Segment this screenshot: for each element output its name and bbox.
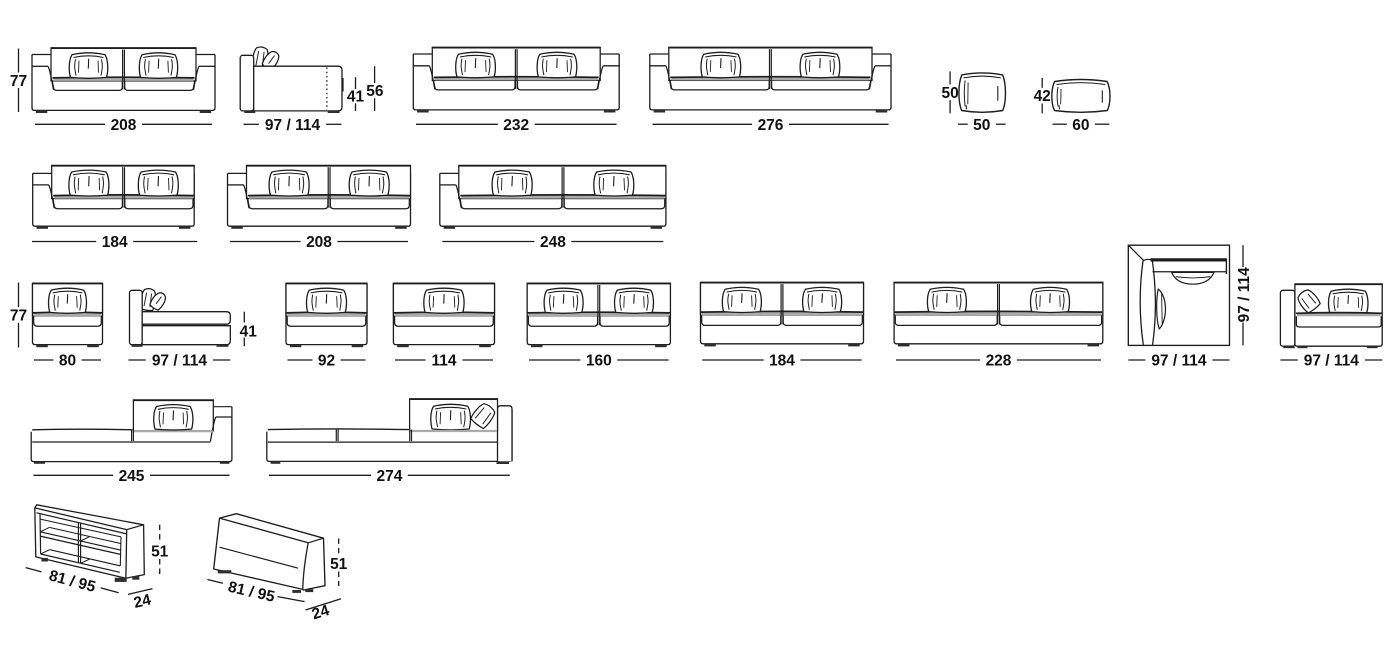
svg-text:208: 208 bbox=[306, 234, 332, 251]
svg-text:50: 50 bbox=[941, 85, 958, 102]
svg-text:232: 232 bbox=[503, 117, 529, 134]
svg-text:276: 276 bbox=[758, 117, 784, 134]
svg-text:60: 60 bbox=[1072, 117, 1089, 134]
svg-text:245: 245 bbox=[119, 468, 145, 485]
svg-text:97 / 114: 97 / 114 bbox=[1304, 353, 1360, 370]
svg-text:228: 228 bbox=[986, 353, 1012, 370]
svg-text:92: 92 bbox=[318, 353, 335, 370]
svg-text:51: 51 bbox=[151, 544, 169, 561]
svg-text:248: 248 bbox=[540, 234, 566, 251]
svg-text:160: 160 bbox=[586, 353, 612, 370]
svg-text:56: 56 bbox=[366, 83, 384, 100]
svg-text:184: 184 bbox=[102, 234, 128, 251]
svg-text:50: 50 bbox=[973, 117, 990, 134]
svg-text:184: 184 bbox=[769, 353, 795, 370]
svg-text:80: 80 bbox=[59, 353, 76, 370]
svg-text:208: 208 bbox=[111, 117, 137, 134]
svg-text:41: 41 bbox=[240, 323, 258, 340]
svg-text:97 / 114: 97 / 114 bbox=[1236, 267, 1253, 323]
svg-text:114: 114 bbox=[431, 353, 456, 370]
svg-text:41: 41 bbox=[347, 89, 365, 106]
svg-text:97 / 114: 97 / 114 bbox=[152, 353, 208, 370]
svg-text:51: 51 bbox=[330, 556, 348, 573]
svg-text:97 / 114: 97 / 114 bbox=[265, 117, 321, 134]
svg-text:274: 274 bbox=[376, 468, 402, 485]
svg-text:42: 42 bbox=[1034, 88, 1051, 105]
svg-text:97 / 114: 97 / 114 bbox=[1151, 353, 1207, 370]
svg-text:77: 77 bbox=[10, 308, 27, 325]
svg-text:77: 77 bbox=[10, 73, 27, 90]
